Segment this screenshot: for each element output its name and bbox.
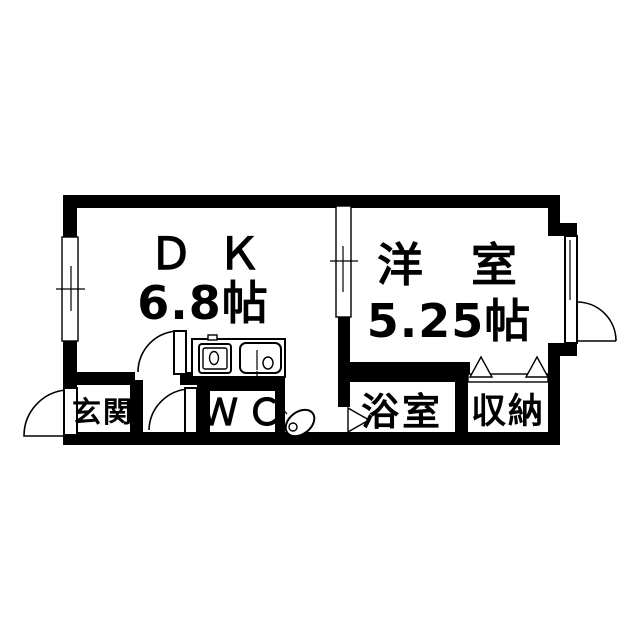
floorplan-canvas: ＤＫ 6.8帖 洋 室 5.25帖 玄関 ＷＣ 浴室 収納	[0, 0, 639, 640]
floorplan-drawing: ＤＫ 6.8帖 洋 室 5.25帖 玄関 ＷＣ 浴室 収納	[0, 0, 639, 640]
kitchen-knob	[208, 335, 217, 340]
dk-door	[138, 331, 186, 374]
stove-burner	[210, 352, 219, 365]
door-swing-arc-icon	[149, 389, 190, 430]
room-label-dk: ＤＫ	[149, 229, 285, 280]
door-swing-arc-icon	[577, 302, 616, 341]
door-leaf	[185, 388, 197, 433]
room-size-dk: 6.8帖	[137, 276, 269, 330]
room-label-genkan: 玄関	[72, 395, 134, 429]
wc-door	[149, 388, 197, 433]
wall-bath-closet	[455, 382, 468, 432]
wall-right-lower	[548, 343, 560, 445]
entry-door	[24, 388, 77, 436]
wall-right-step-top	[548, 223, 577, 236]
wall-wc-top	[197, 380, 285, 391]
wall-left-upper	[63, 195, 77, 239]
room-label-wc: ＷＣ	[201, 391, 291, 434]
door-leaf	[174, 331, 186, 374]
kitchen-sink-icon	[240, 343, 281, 373]
wall-bottom	[63, 432, 560, 445]
room-size-youshitsu: 5.25帖	[367, 294, 532, 348]
door-swing-arc-icon	[24, 390, 66, 436]
room-label-youshitsu: 洋 室	[377, 238, 533, 292]
folding-door-triangle-icon	[526, 357, 548, 377]
faucet-knob	[263, 357, 273, 369]
closet-doors	[468, 357, 548, 382]
wall-yoshitsu-bottom	[338, 362, 470, 382]
window-partition	[330, 206, 358, 317]
folding-door-triangle-icon	[470, 357, 492, 377]
door-swing-arc-icon	[138, 331, 179, 372]
wall-top	[63, 195, 560, 208]
window-left	[56, 237, 85, 341]
wall-dk-bottom-left	[63, 372, 135, 385]
room-label-bath: 浴室	[361, 390, 443, 434]
yoshitsu-door	[565, 236, 616, 343]
kitchen-unit	[192, 335, 285, 380]
room-label-closet: 収納	[471, 392, 545, 432]
door-leaf	[565, 236, 577, 343]
